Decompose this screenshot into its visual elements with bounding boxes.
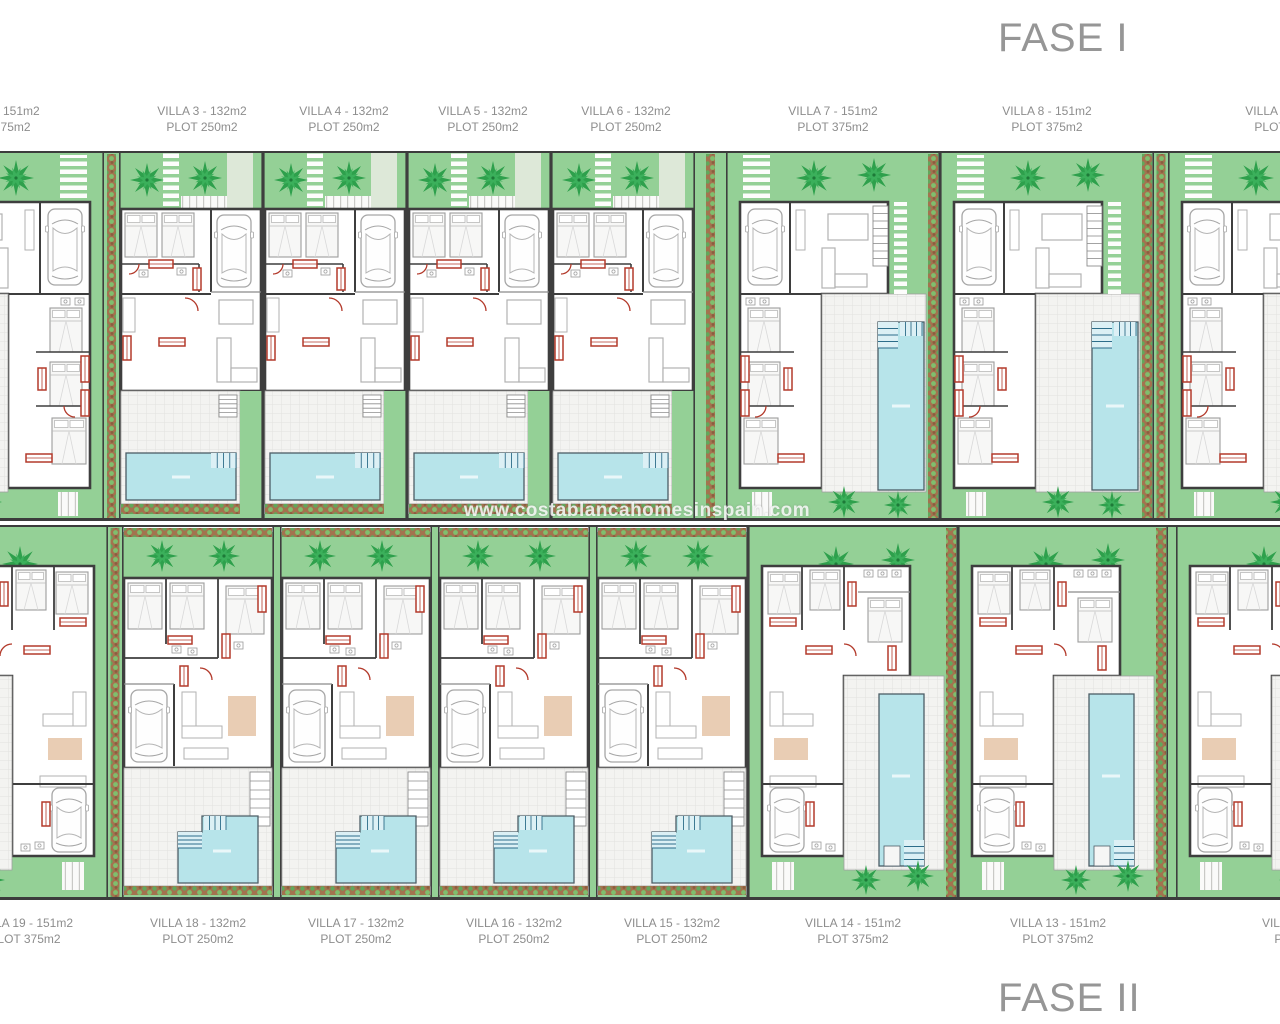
villa-8-label: VILLA 8 - 151m2PLOT 375m2 (1002, 104, 1091, 135)
villa-6-floorplan (551, 152, 695, 521)
fase-2-title: FASE II (998, 976, 1141, 1021)
villa-2-label: VILLA 2 - 151m2PLOT 375m2 (0, 104, 40, 135)
villa-17-floorplan (280, 526, 432, 900)
villa-plot-size: PLOT 375m2 (1002, 120, 1091, 136)
villa-plot-size: PLOT 375m2 (788, 120, 877, 136)
villa-13-label: VILLA 13 - 151m2PLOT 375m2 (1010, 916, 1106, 947)
site-boundary-line (0, 897, 1280, 900)
villa-4-floorplan (263, 152, 407, 521)
site-boundary-line (0, 151, 1280, 154)
villa-name-size: VILLA 19 - 151m2 (0, 916, 73, 932)
villa-plot-size: PLOT 375m2 (1010, 932, 1106, 948)
villa-name-size: VILLA 18 - 132m2 (150, 916, 246, 932)
plot-divider (108, 526, 122, 900)
site-boundary-line (0, 525, 1280, 528)
villa-name-size: VILLA 12 - 151m2 (1262, 916, 1280, 932)
villa-name-size: VILLA 15 - 132m2 (624, 916, 720, 932)
villa-plot-size: PLOT 375m2 (0, 120, 40, 136)
villa-plot-size: PLOT 375m2 (0, 932, 73, 948)
site-plan: FASE I FASE II www.costablancahomesinspa… (0, 0, 1280, 1024)
plot-divider (432, 526, 438, 900)
villa-plot-size: PLOT 250m2 (157, 120, 246, 136)
plot-divider (695, 152, 726, 521)
villa-plot-size: PLOT 250m2 (624, 932, 720, 948)
villa-8-floorplan (940, 152, 1154, 521)
villa-13-floorplan (958, 526, 1168, 900)
villa-19-floorplan (0, 526, 108, 900)
watermark: www.costablancahomesinspain.com (464, 500, 810, 522)
villa-7-floorplan (726, 152, 940, 521)
villa-name-size: VILLA 9 - 151m2 (1245, 104, 1280, 120)
villa-14-floorplan (748, 526, 958, 900)
plot-divider (590, 526, 596, 900)
villa-12-floorplan (1176, 526, 1280, 900)
villa-plot-size: PLOT 250m2 (308, 932, 404, 948)
villa-name-size: VILLA 7 - 151m2 (788, 104, 877, 120)
villa-5-label: VILLA 5 - 132m2PLOT 250m2 (438, 104, 527, 135)
villa-18-label: VILLA 18 - 132m2PLOT 250m2 (150, 916, 246, 947)
villa-plot-size: PLOT 250m2 (466, 932, 562, 948)
villa-plot-size: PLOT 250m2 (150, 932, 246, 948)
villa-15-label: VILLA 15 - 132m2PLOT 250m2 (624, 916, 720, 947)
villa-4-label: VILLA 4 - 132m2PLOT 250m2 (299, 104, 388, 135)
villa-14-label: VILLA 14 - 151m2PLOT 375m2 (805, 916, 901, 947)
villa-name-size: VILLA 8 - 151m2 (1002, 104, 1091, 120)
villa-9-floorplan (1168, 152, 1280, 521)
villa-name-size: VILLA 4 - 132m2 (299, 104, 388, 120)
villa-name-size: VILLA 5 - 132m2 (438, 104, 527, 120)
villa-16-label: VILLA 16 - 132m2PLOT 250m2 (466, 916, 562, 947)
villa-19-label: VILLA 19 - 151m2PLOT 375m2 (0, 916, 73, 947)
plot-divider (274, 526, 280, 900)
villa-plot-size: PLOT 375m2 (1245, 120, 1280, 136)
villa-plot-size: PLOT 250m2 (438, 120, 527, 136)
villa-name-size: VILLA 16 - 132m2 (466, 916, 562, 932)
villa-15-floorplan (596, 526, 748, 900)
plot-divider (104, 152, 119, 521)
plot-divider (1168, 526, 1176, 900)
villa-12-label: VILLA 12 - 151m2PLOT 375m2 (1262, 916, 1280, 947)
villa-16-floorplan (438, 526, 590, 900)
villa-plot-size: PLOT 375m2 (805, 932, 901, 948)
villa-17-label: VILLA 17 - 132m2PLOT 250m2 (308, 916, 404, 947)
fase-1-title: FASE I (998, 16, 1129, 61)
villa-plot-size: PLOT 250m2 (581, 120, 670, 136)
villa-name-size: VILLA 6 - 132m2 (581, 104, 670, 120)
villa-5-floorplan (407, 152, 551, 521)
villa-name-size: VILLA 14 - 151m2 (805, 916, 901, 932)
villa-3-label: VILLA 3 - 132m2PLOT 250m2 (157, 104, 246, 135)
villa-2-floorplan (0, 152, 104, 521)
villa-18-floorplan (122, 526, 274, 900)
villa-3-floorplan (119, 152, 263, 521)
villa-9-label: VILLA 9 - 151m2PLOT 375m2 (1245, 104, 1280, 135)
villa-plot-size: PLOT 250m2 (299, 120, 388, 136)
plot-divider (1154, 152, 1168, 521)
villa-plot-size: PLOT 375m2 (1262, 932, 1280, 948)
villa-7-label: VILLA 7 - 151m2PLOT 375m2 (788, 104, 877, 135)
villa-6-label: VILLA 6 - 132m2PLOT 250m2 (581, 104, 670, 135)
villa-name-size: VILLA 17 - 132m2 (308, 916, 404, 932)
villa-name-size: VILLA 3 - 132m2 (157, 104, 246, 120)
villa-name-size: VILLA 13 - 151m2 (1010, 916, 1106, 932)
villa-name-size: VILLA 2 - 151m2 (0, 104, 40, 120)
